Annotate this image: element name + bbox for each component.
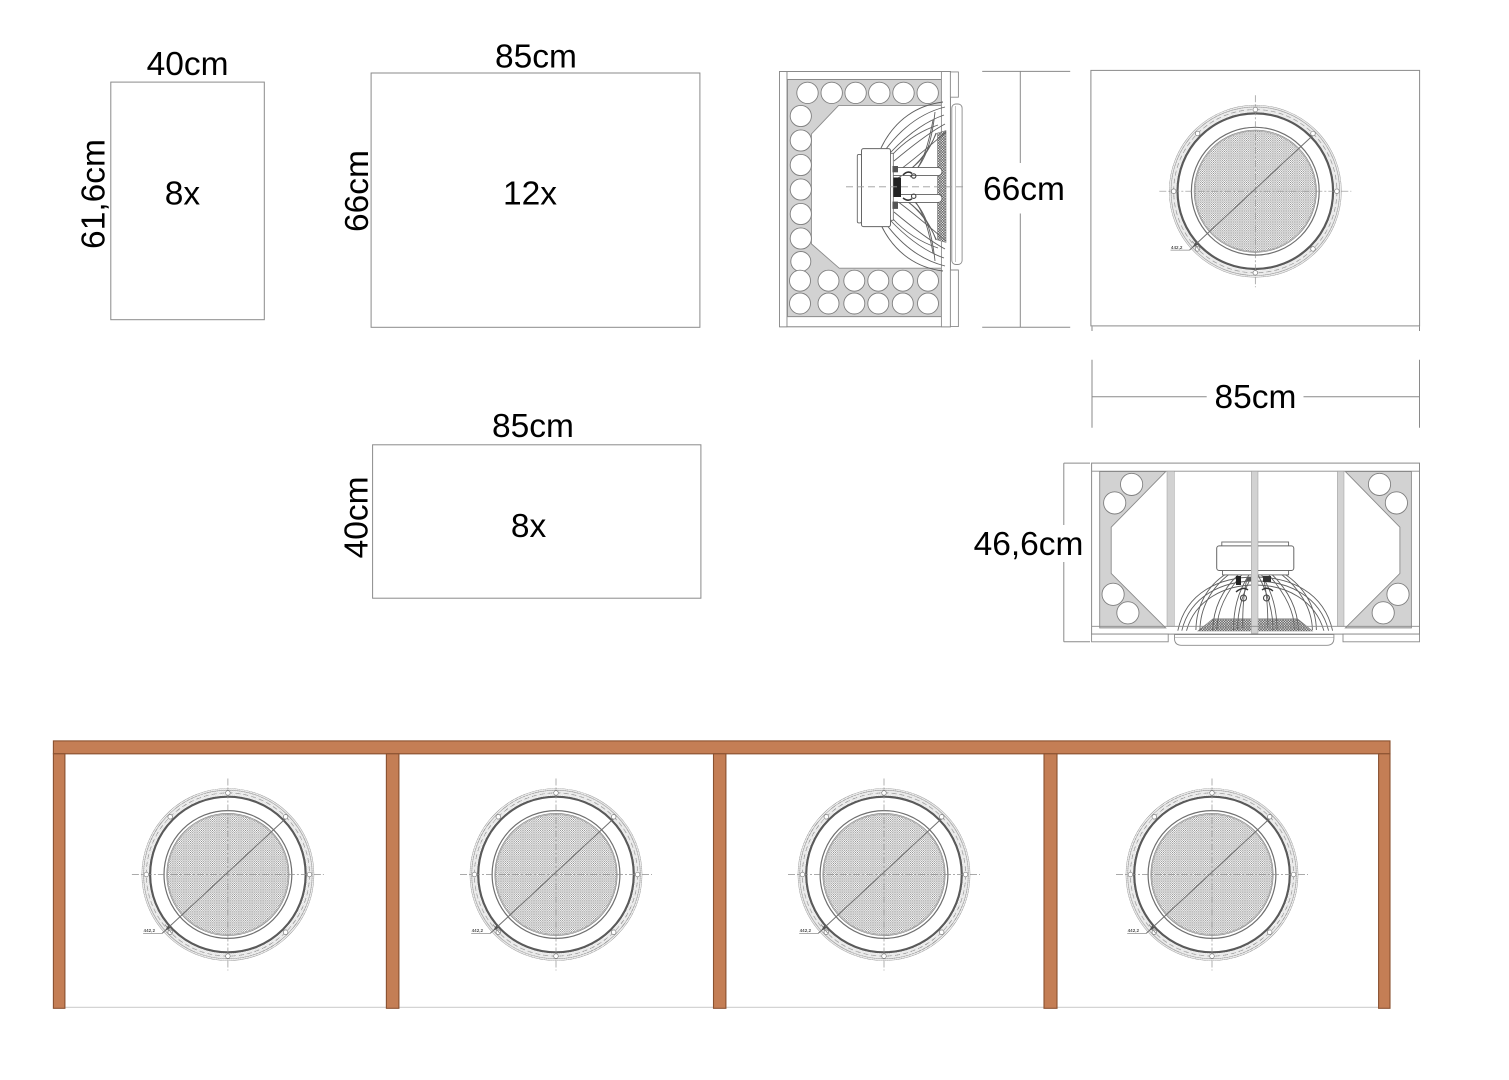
svg-text:85cm: 85cm — [492, 408, 574, 445]
svg-text:8x: 8x — [511, 508, 547, 545]
svg-text:85cm: 85cm — [495, 39, 577, 76]
svg-text:61,6cm: 61,6cm — [76, 139, 113, 249]
svg-text:85cm: 85cm — [1215, 379, 1297, 416]
svg-text:40cm: 40cm — [339, 476, 376, 558]
svg-text:12x: 12x — [503, 176, 557, 213]
svg-text:66cm: 66cm — [983, 171, 1065, 208]
svg-text:46,6cm: 46,6cm — [974, 526, 1084, 563]
svg-text:66cm: 66cm — [339, 150, 376, 232]
svg-text:8x: 8x — [165, 176, 201, 213]
svg-text:40cm: 40cm — [147, 46, 229, 83]
